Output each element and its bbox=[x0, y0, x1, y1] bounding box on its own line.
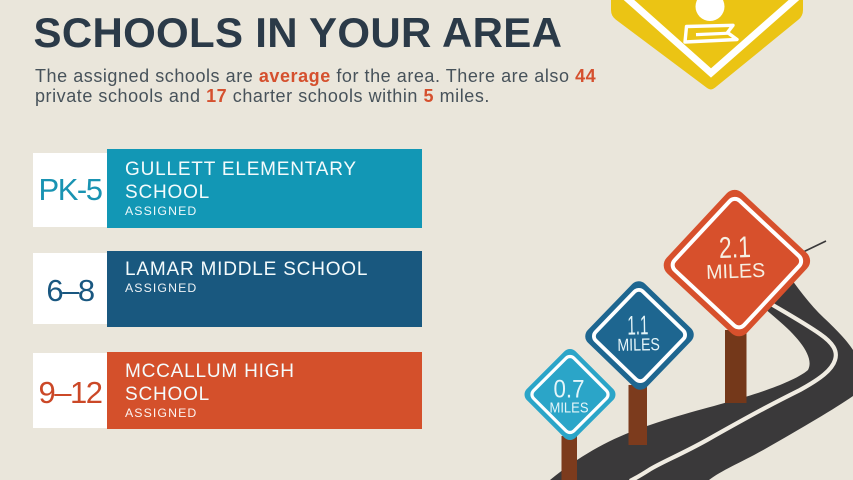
svg-text:MILES: MILES bbox=[706, 260, 766, 284]
svg-text:MILES: MILES bbox=[550, 399, 589, 416]
svg-text:MILES: MILES bbox=[617, 334, 660, 355]
